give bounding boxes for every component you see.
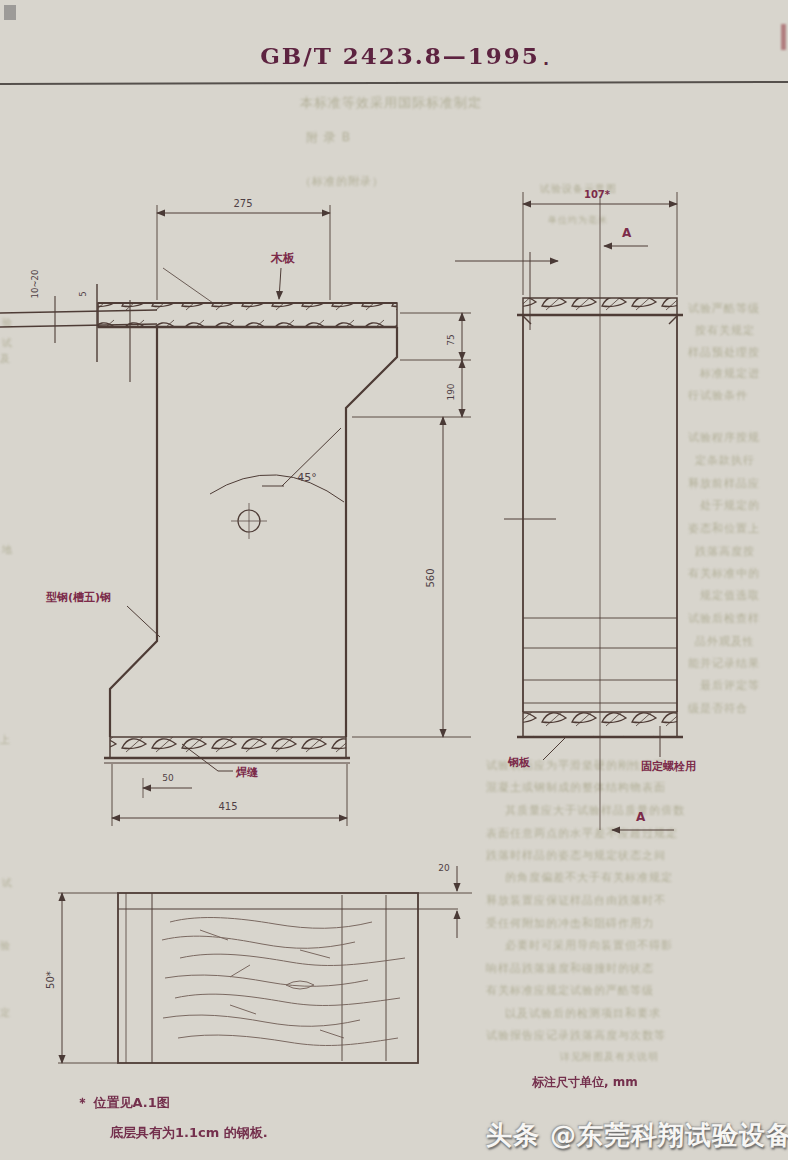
plan-dim-thickness: 20 xyxy=(438,863,450,873)
plan-panel-outline xyxy=(118,893,418,1063)
front-angle-label: 45° xyxy=(297,471,317,484)
front-label-weld: 焊缝 xyxy=(235,766,259,779)
front-label-shaped-steel: 型钢(槽五)钢 xyxy=(45,591,111,604)
plan-wood-grain xyxy=(162,918,405,1046)
scanned-standard-page: GB/T 2423.8—1995 . 本标准等效采用国际标准制定附 录 B（标准… xyxy=(0,0,788,1160)
front-dim-190: 190 xyxy=(446,383,456,400)
front-wall-right-outline xyxy=(346,327,397,737)
side-label-fixing-bolts: 固定螺栓用 xyxy=(641,760,696,773)
plan-dim-height: 50* xyxy=(45,971,56,989)
side-dim-top: 107* xyxy=(584,189,611,200)
front-bottom-slab-hatch xyxy=(110,737,346,758)
footnote-position: ＊ 位置见A.1图 xyxy=(76,1094,170,1112)
front-view-drawing xyxy=(0,205,471,826)
front-dim-top-width: 275 xyxy=(233,198,252,209)
units-note: 标注尺寸单位, mm xyxy=(532,1074,638,1091)
watermark-text: 头条 @东莞科翔试验设备 xyxy=(485,1118,786,1153)
side-label-steel-plate: 钢板 xyxy=(507,756,531,769)
plan-view-drawing xyxy=(58,866,472,1063)
side-view-drawing xyxy=(455,192,683,830)
side-section-label-top: A xyxy=(622,226,632,240)
technical-drawing-canvas: 275 木板 45° 型钢(槽五)钢 焊缝 50 415 75 190 560 … xyxy=(0,0,788,1160)
front-top-slab-hatch xyxy=(98,303,397,327)
side-section-label-bottom: A xyxy=(636,810,646,824)
front-dim-small: 5 xyxy=(79,291,88,296)
front-label-wood-board: 木板 xyxy=(270,251,295,265)
front-dim-50: 50 xyxy=(162,773,174,783)
footnote-bottom-layer: 底层具有为1.1cm 的钢板. xyxy=(110,1124,268,1142)
front-dim-thickness-range: 10~20 xyxy=(30,270,40,299)
front-wall-left-outline xyxy=(110,327,157,737)
front-dim-560: 560 xyxy=(425,568,436,587)
front-dim-415: 415 xyxy=(218,801,237,812)
front-dim-75: 75 xyxy=(446,334,456,345)
